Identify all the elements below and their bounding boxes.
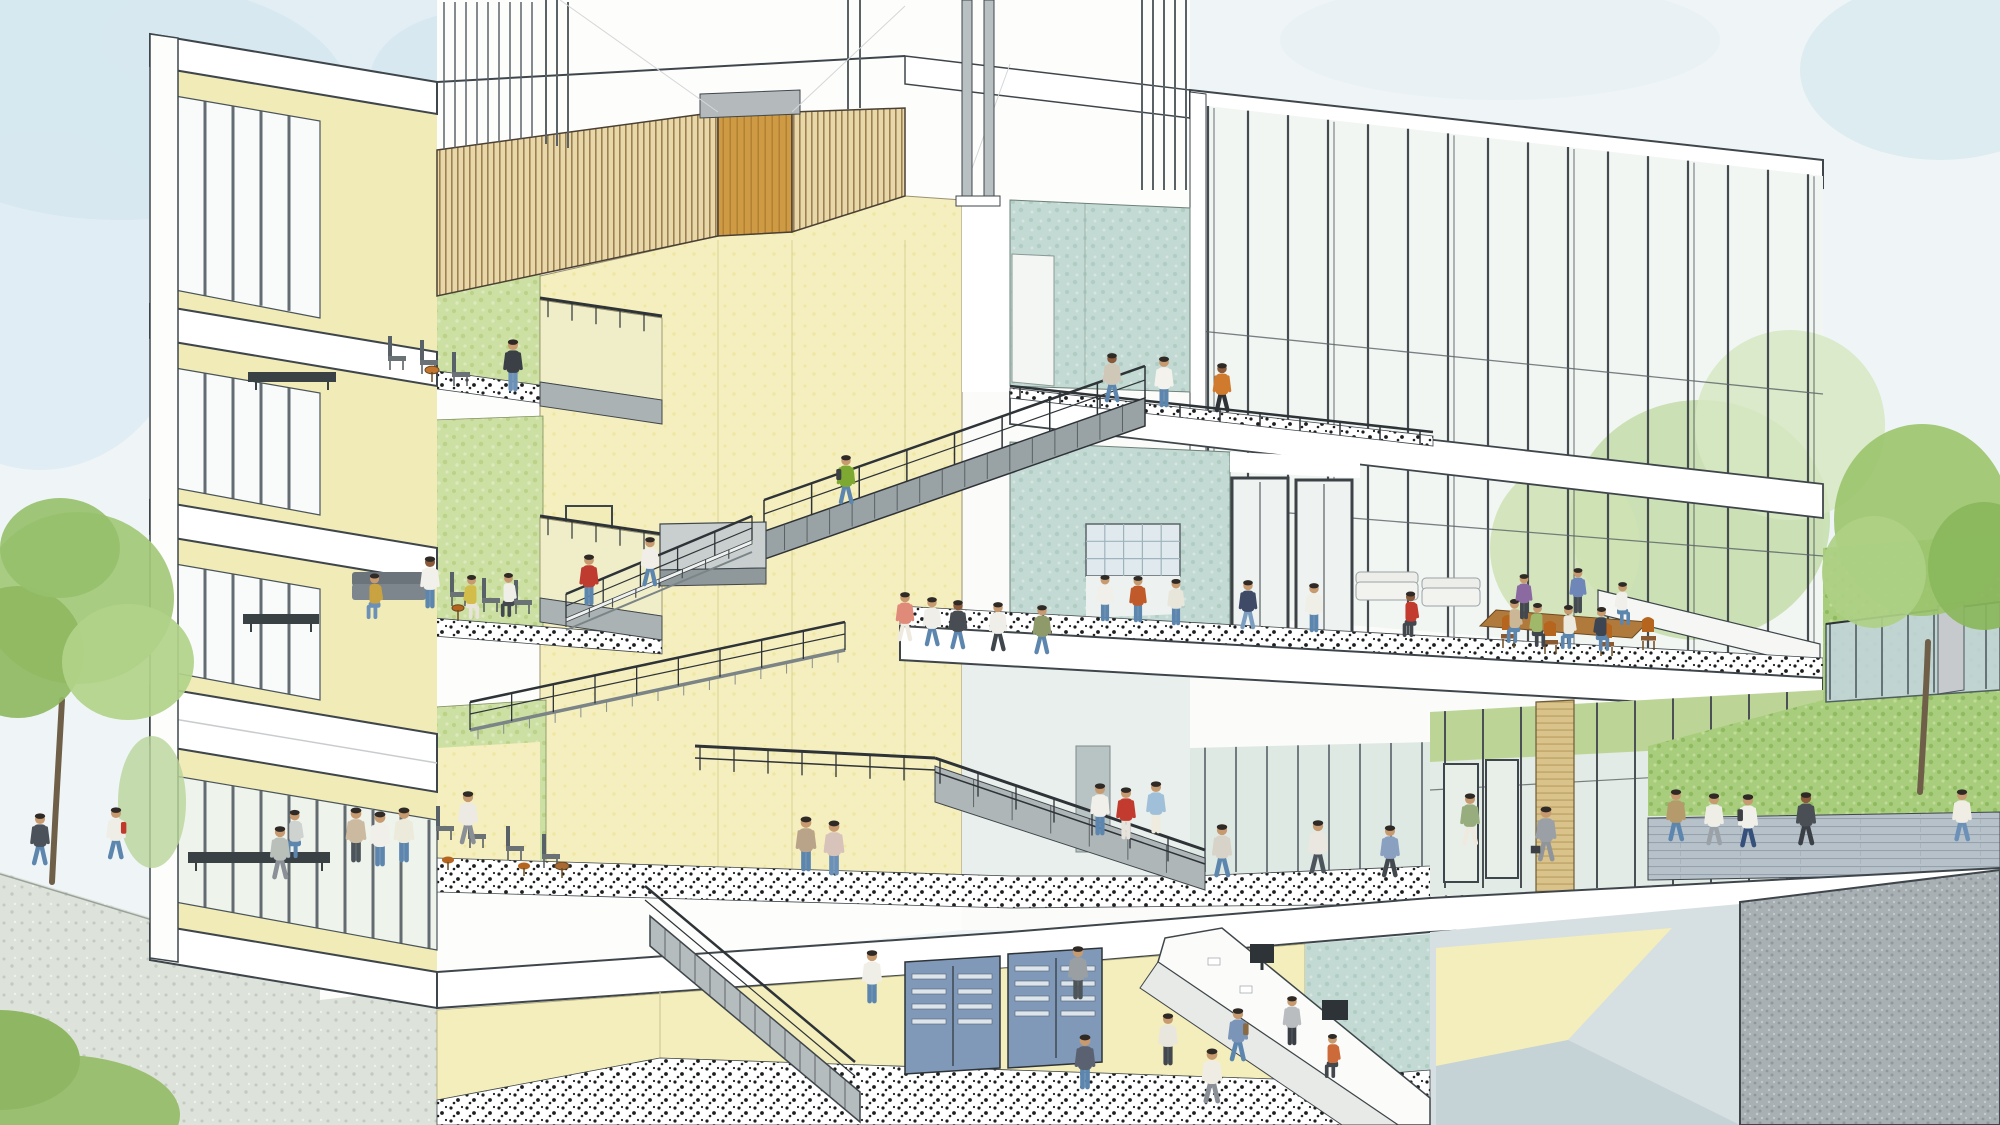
basement-right-room [1430,904,1740,1125]
monitor [1250,944,1274,963]
brick-pier [1536,700,1574,894]
curtain-wall [1190,92,1885,675]
architectural-section-illustration [0,0,2000,1125]
concrete-mass [1740,870,2000,1125]
entry-door [1486,760,1518,878]
section-drawing [0,0,2000,1125]
monitor [1322,1000,1348,1020]
furniture-sofa [352,572,426,600]
atrium-wall-sliver [962,196,1010,392]
furniture-couch [1422,578,1480,606]
